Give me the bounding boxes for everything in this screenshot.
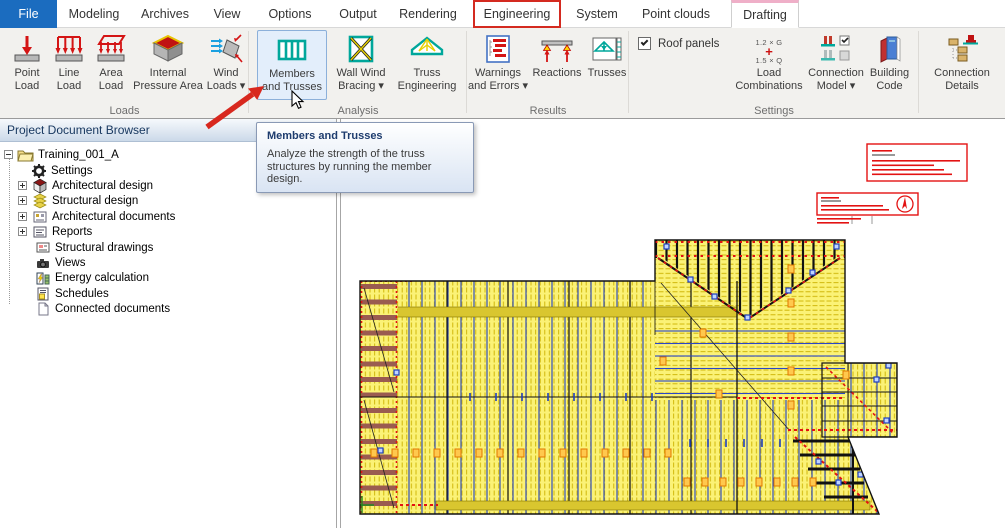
button-label: Load xyxy=(90,80,132,93)
tree-item-label: Settings xyxy=(51,165,93,177)
connection-details-icon xyxy=(925,30,999,67)
connection-model-icon xyxy=(805,30,867,67)
button-label: Connection xyxy=(805,67,867,80)
architectural-documents-icon xyxy=(31,209,48,225)
warnings-and-errors-icon xyxy=(467,30,529,67)
tab-spacer xyxy=(719,0,731,28)
tab-view[interactable]: View xyxy=(199,0,255,28)
button-label: Reactions xyxy=(531,67,583,80)
tree-item-label: Architectural design xyxy=(52,180,153,192)
folder-open-icon xyxy=(17,147,34,163)
trusses-icon xyxy=(585,30,629,67)
button-label: Connection xyxy=(925,67,999,80)
group-label-results: Results xyxy=(467,105,629,117)
button-label: Members xyxy=(258,68,326,81)
gear-icon xyxy=(30,163,47,179)
ribbon-group-connection-details: ConnectionDetails xyxy=(919,28,1005,118)
button-label: Details xyxy=(925,80,999,93)
tree-item-views[interactable]: Views xyxy=(34,255,85,270)
building-code-button[interactable]: BuildingCode xyxy=(862,30,917,100)
tab-spacer xyxy=(465,0,473,28)
wall-wind-bracing-button[interactable]: Wall WindBracing ▾ xyxy=(330,30,392,100)
expander-plus[interactable] xyxy=(18,181,27,190)
group-label-analysis: Analysis xyxy=(249,105,467,117)
button-label: Bracing ▾ xyxy=(330,80,392,93)
line-load-icon xyxy=(48,30,90,67)
button-label: Load xyxy=(734,67,804,80)
tree-item-label: Schedules xyxy=(55,288,109,300)
load-combinations-button[interactable]: 1.2 × G + 1.5 × Q LoadCombinations xyxy=(734,30,804,100)
button-label: and Trusses xyxy=(258,81,326,94)
roof-panels-label: Roof panels xyxy=(658,38,719,50)
wind-loads-icon xyxy=(204,30,248,67)
reports-icon xyxy=(31,224,48,240)
tree-item-reports[interactable]: Reports xyxy=(18,224,92,239)
building-code-icon xyxy=(862,30,917,67)
tree-item-label: Connected documents xyxy=(55,303,170,315)
ribbon-group-analysis: Membersand Trusses Wall WindBracing ▾ Tr… xyxy=(249,28,467,118)
load-factor-bottom: 1.5 × Q xyxy=(756,57,783,65)
expander-plus[interactable] xyxy=(18,227,27,236)
ribbon-group-loads: PointLoad LineLoad AreaLoad xyxy=(0,28,249,118)
structural-drawings-icon xyxy=(34,240,51,256)
ribbon-group-settings: Roof panels 1.2 × G + 1.5 × Q LoadCombin… xyxy=(629,28,919,118)
architectural-design-icon xyxy=(31,178,48,194)
project-tree: Training_001_A Settings Architectural de… xyxy=(0,142,335,528)
structural-design-icon xyxy=(31,193,48,209)
tab-modeling[interactable]: Modeling xyxy=(57,0,131,28)
members-and-trusses-button[interactable]: Membersand Trusses xyxy=(257,30,327,100)
tooltip-title: Members and Trusses xyxy=(267,130,463,142)
tree-item-label: Structural design xyxy=(52,195,138,207)
tree-item-root[interactable]: Training_001_A xyxy=(4,147,119,162)
members-and-trusses-tooltip: Members and Trusses Analyze the strength… xyxy=(256,122,474,193)
button-label: Truss xyxy=(392,67,462,80)
tab-system[interactable]: System xyxy=(561,0,633,28)
tree-item-settings[interactable]: Settings xyxy=(30,163,93,178)
ribbon-tab-bar: File Modeling Archives View Options Outp… xyxy=(0,0,1005,28)
energy-calculation-icon xyxy=(34,270,51,286)
button-label: Line xyxy=(48,67,90,80)
document-icon xyxy=(34,301,51,317)
tree-item-architectural-design[interactable]: Architectural design xyxy=(18,178,153,193)
tree-item-structural-design[interactable]: Structural design xyxy=(18,193,138,208)
members-and-trusses-icon xyxy=(258,31,326,68)
load-combinations-icon: 1.2 × G + 1.5 × Q xyxy=(734,30,804,67)
button-label: Warnings xyxy=(467,67,529,80)
button-label: Wind xyxy=(204,67,248,80)
area-load-button[interactable]: AreaLoad xyxy=(90,30,132,100)
tree-item-label: Energy calculation xyxy=(55,272,149,284)
reactions-button[interactable]: Reactions xyxy=(531,30,583,100)
button-label: Loads ▾ xyxy=(204,80,248,93)
roof-panels-checkbox[interactable] xyxy=(638,37,651,50)
tree-item-structural-drawings[interactable]: Structural drawings xyxy=(34,240,153,255)
tab-drafting[interactable]: Drafting xyxy=(731,0,799,28)
checkmark-icon xyxy=(641,38,649,46)
warnings-and-errors-button[interactable]: Warningsand Errors ▾ xyxy=(467,30,529,100)
title-block-a xyxy=(867,144,967,181)
tab-engineering[interactable]: Engineering xyxy=(473,0,561,28)
reactions-icon xyxy=(531,30,583,67)
tree-item-connected-documents[interactable]: Connected documents xyxy=(34,301,170,316)
tab-rendering[interactable]: Rendering xyxy=(391,0,465,28)
tree-item-label: Training_001_A xyxy=(38,149,119,161)
truss-engineering-button[interactable]: TrussEngineering xyxy=(392,30,462,100)
tab-output[interactable]: Output xyxy=(325,0,391,28)
schedules-icon xyxy=(34,286,51,302)
trusses-button[interactable]: Trusses xyxy=(585,30,629,100)
area-load-icon xyxy=(90,30,132,67)
expander-plus[interactable] xyxy=(18,196,27,205)
button-label: Load xyxy=(6,80,48,93)
button-label: Internal xyxy=(132,67,204,80)
point-load-button[interactable]: PointLoad xyxy=(6,30,48,100)
group-label-loads: Loads xyxy=(0,105,249,117)
group-label-settings: Settings xyxy=(629,105,919,117)
tab-options[interactable]: Options xyxy=(255,0,325,28)
ribbon-group-results: Warningsand Errors ▾ Reactions Tru xyxy=(467,28,629,118)
truss-engineering-icon xyxy=(392,30,462,67)
tree-item-energy-calculation[interactable]: Energy calculation xyxy=(34,270,149,285)
tree-item-label: Architectural documents xyxy=(52,211,175,223)
button-label: Wall Wind xyxy=(330,67,392,80)
button-label: Trusses xyxy=(585,67,629,80)
tab-file[interactable]: File xyxy=(0,0,57,28)
wind-loads-button[interactable]: WindLoads ▾ xyxy=(204,30,248,100)
button-label: Model ▾ xyxy=(805,80,867,93)
internal-pressure-area-button[interactable]: InternalPressure Area xyxy=(132,30,204,100)
connection-details-button[interactable]: ConnectionDetails xyxy=(925,30,999,100)
tooltip-body: Analyze the strength of the truss struct… xyxy=(267,148,465,186)
tree-item-schedules[interactable]: Schedules xyxy=(34,286,109,301)
tree-connector xyxy=(9,158,10,304)
connection-model-button[interactable]: ConnectionModel ▾ xyxy=(805,30,867,100)
button-label: Building xyxy=(862,67,917,80)
button-label: Pressure Area xyxy=(132,80,204,93)
tab-point-clouds[interactable]: Point clouds xyxy=(633,0,719,28)
expander-minus[interactable] xyxy=(4,150,13,159)
tab-archives[interactable]: Archives xyxy=(131,0,199,28)
expander-plus[interactable] xyxy=(18,212,27,221)
internal-pressure-area-icon xyxy=(132,30,204,67)
line-load-button[interactable]: LineLoad xyxy=(48,30,90,100)
button-label: Area xyxy=(90,67,132,80)
tree-item-label: Views xyxy=(55,257,85,269)
wall-wind-bracing-icon xyxy=(330,30,392,67)
button-label: Engineering xyxy=(392,80,462,93)
camera-icon xyxy=(34,255,51,271)
point-load-icon xyxy=(6,30,48,67)
button-label: and Errors ▾ xyxy=(467,80,529,93)
tree-item-label: Structural drawings xyxy=(55,242,153,254)
button-label: Combinations xyxy=(734,80,804,93)
button-label: Load xyxy=(48,80,90,93)
button-label: Code xyxy=(862,80,917,93)
tree-item-architectural-documents[interactable]: Architectural documents xyxy=(18,209,175,224)
ribbon: PointLoad LineLoad AreaLoad xyxy=(0,28,1005,119)
tree-item-label: Reports xyxy=(52,226,92,238)
button-label: Point xyxy=(6,67,48,80)
title-block-b xyxy=(817,193,918,224)
